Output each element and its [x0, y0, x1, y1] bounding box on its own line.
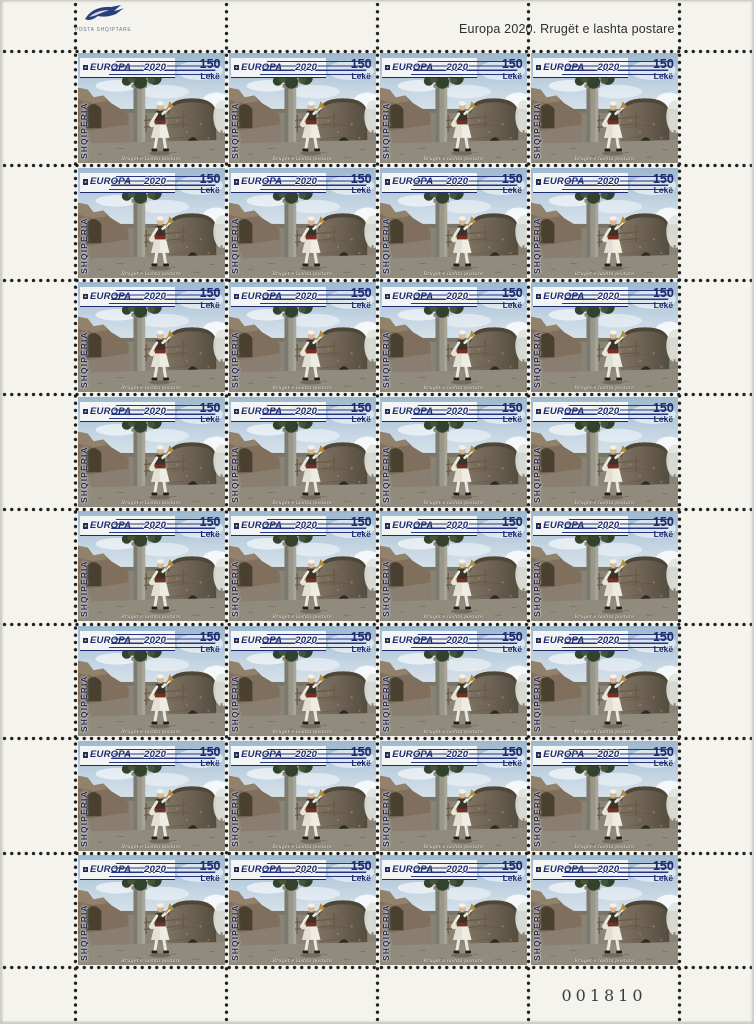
country-name: SHQIPËRIA — [79, 194, 89, 274]
stamp: EUROPA 2020 150 Lekë SHQIPËRIA Rrugët e … — [229, 397, 376, 507]
stamp: EUROPA 2020 150 Lekë SHQIPËRIA Rrugët e … — [78, 168, 225, 278]
country-name: SHQIPËRIA — [532, 881, 542, 961]
europa-text: EUROPA — [90, 750, 131, 760]
europa-2020-logo: EUROPA 2020 — [382, 287, 477, 307]
europa-text: EUROPA — [90, 63, 131, 73]
europa-year: 2020 — [144, 636, 166, 646]
europa-year: 2020 — [446, 636, 468, 646]
country-name: SHQIPËRIA — [230, 537, 240, 617]
country-name: SHQIPËRIA — [79, 308, 89, 388]
stamp-caption: Rrugët e lashta postare — [531, 385, 678, 391]
denomination: 150 Lekë — [502, 746, 523, 768]
denomination-currency: Lekë — [653, 530, 674, 539]
denomination-currency: Lekë — [200, 301, 221, 310]
stamp: EUROPA 2020 150 Lekë SHQIPËRIA Rrugët e … — [229, 626, 376, 736]
europa-year: 2020 — [295, 177, 317, 187]
stamp-sheet-scan: POSTA SHQIPTARE Europa 2020. Rrugët e la… — [0, 0, 754, 1024]
denomination-currency: Lekë — [502, 301, 523, 310]
stamp: EUROPA 2020 150 Lekë SHQIPËRIA Rrugët e … — [380, 53, 527, 163]
denomination-value: 150 — [502, 631, 523, 644]
denomination-currency: Lekë — [502, 186, 523, 195]
europa-2020-logo: EUROPA 2020 — [80, 516, 175, 536]
denomination-value: 150 — [351, 746, 372, 759]
denomination: 150 Lekë — [502, 58, 523, 80]
eu-flag-icon — [83, 523, 89, 529]
europa-text: EUROPA — [90, 292, 131, 302]
stamp-caption: Rrugët e lashta postare — [229, 614, 376, 620]
eu-flag-icon — [234, 179, 240, 185]
stamp: EUROPA 2020 150 Lekë SHQIPËRIA Rrugët e … — [531, 511, 678, 621]
europa-2020-logo: EUROPA 2020 — [382, 402, 477, 422]
eu-flag-icon — [83, 65, 89, 71]
country-name: SHQIPËRIA — [230, 881, 240, 961]
country-name: SHQIPËRIA — [532, 79, 542, 159]
stamp-caption: Rrugët e lashta postare — [380, 156, 527, 162]
denomination-value: 150 — [502, 287, 523, 300]
denomination: 150 Lekë — [351, 58, 372, 80]
stamp-caption: Rrugët e lashta postare — [531, 844, 678, 850]
europa-2020-logo: EUROPA 2020 — [231, 402, 326, 422]
europa-year: 2020 — [144, 63, 166, 73]
stamp-caption: Rrugët e lashta postare — [531, 271, 678, 277]
stamp-caption: Rrugët e lashta postare — [78, 271, 225, 277]
sheet-serial-number: 001810 — [528, 986, 680, 1005]
stamp: EUROPA 2020 150 Lekë SHQIPËRIA Rrugët e … — [229, 168, 376, 278]
europa-year: 2020 — [295, 865, 317, 875]
eu-flag-icon — [536, 752, 542, 758]
europa-text: EUROPA — [392, 407, 433, 417]
denomination-currency: Lekë — [502, 645, 523, 654]
europa-text: EUROPA — [543, 750, 584, 760]
europa-text: EUROPA — [241, 521, 282, 531]
country-name: SHQIPËRIA — [381, 652, 391, 732]
stamp: EUROPA 2020 150 Lekë SHQIPËRIA Rrugët e … — [531, 855, 678, 965]
europa-2020-logo: EUROPA 2020 — [80, 173, 175, 193]
denomination: 150 Lekë — [351, 402, 372, 424]
denomination: 150 Lekë — [502, 173, 523, 195]
denomination: 150 Lekë — [351, 860, 372, 882]
eu-flag-icon — [385, 179, 391, 185]
denomination-currency: Lekë — [200, 72, 221, 81]
denomination-currency: Lekë — [653, 874, 674, 883]
europa-2020-logo: EUROPA 2020 — [382, 173, 477, 193]
europa-year: 2020 — [446, 521, 468, 531]
denomination: 150 Lekë — [653, 631, 674, 653]
denomination-currency: Lekë — [502, 415, 523, 424]
denomination-currency: Lekë — [502, 72, 523, 81]
denomination-currency: Lekë — [351, 415, 372, 424]
eu-flag-icon — [83, 867, 89, 873]
denomination-value: 150 — [502, 173, 523, 186]
stamp: EUROPA 2020 150 Lekë SHQIPËRIA Rrugët e … — [78, 53, 225, 163]
europa-year: 2020 — [597, 292, 619, 302]
denomination-value: 150 — [200, 746, 221, 759]
denomination: 150 Lekë — [351, 746, 372, 768]
stamp: EUROPA 2020 150 Lekë SHQIPËRIA Rrugët e … — [380, 282, 527, 392]
europa-year: 2020 — [597, 865, 619, 875]
eu-flag-icon — [536, 867, 542, 873]
europa-text: EUROPA — [241, 750, 282, 760]
denomination: 150 Lekë — [653, 173, 674, 195]
country-name: SHQIPËRIA — [532, 308, 542, 388]
stamp: EUROPA 2020 150 Lekë SHQIPËRIA Rrugët e … — [229, 511, 376, 621]
europa-2020-logo: EUROPA 2020 — [80, 58, 175, 78]
denomination: 150 Lekë — [502, 860, 523, 882]
europa-text: EUROPA — [392, 292, 433, 302]
country-name: SHQIPËRIA — [532, 194, 542, 274]
stamp-caption: Rrugët e lashta postare — [78, 729, 225, 735]
europa-2020-logo: EUROPA 2020 — [533, 631, 628, 651]
denomination-value: 150 — [653, 516, 674, 529]
europa-text: EUROPA — [392, 521, 433, 531]
europa-year: 2020 — [295, 63, 317, 73]
europa-year: 2020 — [446, 407, 468, 417]
denomination-currency: Lekë — [200, 874, 221, 883]
stamp: EUROPA 2020 150 Lekë SHQIPËRIA Rrugët e … — [531, 626, 678, 736]
europa-year: 2020 — [446, 63, 468, 73]
stamp-caption: Rrugët e lashta postare — [78, 844, 225, 850]
stamp-caption: Rrugët e lashta postare — [531, 156, 678, 162]
europa-2020-logo: EUROPA 2020 — [533, 173, 628, 193]
europa-2020-logo: EUROPA 2020 — [231, 287, 326, 307]
europa-2020-logo: EUROPA 2020 — [231, 631, 326, 651]
eu-flag-icon — [83, 409, 89, 415]
stamp-caption: Rrugët e lashta postare — [229, 156, 376, 162]
denomination: 150 Lekë — [351, 631, 372, 653]
denomination: 150 Lekë — [200, 516, 221, 538]
europa-2020-logo: EUROPA 2020 — [382, 516, 477, 536]
europa-2020-logo: EUROPA 2020 — [533, 860, 628, 880]
denomination-currency: Lekë — [653, 186, 674, 195]
europa-year: 2020 — [144, 865, 166, 875]
stamp-caption: Rrugët e lashta postare — [229, 500, 376, 506]
issuer-name: POSTA SHQIPTARE — [62, 27, 144, 33]
denomination-value: 150 — [653, 631, 674, 644]
stamp: EUROPA 2020 150 Lekë SHQIPËRIA Rrugët e … — [78, 626, 225, 736]
stamp: EUROPA 2020 150 Lekë SHQIPËRIA Rrugët e … — [380, 626, 527, 736]
stamp: EUROPA 2020 150 Lekë SHQIPËRIA Rrugët e … — [78, 511, 225, 621]
stamp-caption: Rrugët e lashta postare — [229, 271, 376, 277]
eu-flag-icon — [385, 65, 391, 71]
eu-flag-icon — [536, 523, 542, 529]
denomination-currency: Lekë — [200, 186, 221, 195]
stamp: EUROPA 2020 150 Lekë SHQIPËRIA Rrugët e … — [380, 855, 527, 965]
europa-text: EUROPA — [543, 292, 584, 302]
stamp: EUROPA 2020 150 Lekë SHQIPËRIA Rrugët e … — [229, 855, 376, 965]
europa-text: EUROPA — [241, 177, 282, 187]
stamp: EUROPA 2020 150 Lekë SHQIPËRIA Rrugët e … — [380, 741, 527, 851]
country-name: SHQIPËRIA — [79, 537, 89, 617]
denomination-currency: Lekë — [351, 759, 372, 768]
europa-year: 2020 — [446, 177, 468, 187]
europa-year: 2020 — [597, 750, 619, 760]
eu-flag-icon — [234, 409, 240, 415]
europa-text: EUROPA — [543, 865, 584, 875]
denomination: 150 Lekë — [653, 58, 674, 80]
eu-flag-icon — [234, 523, 240, 529]
denomination-value: 150 — [502, 746, 523, 759]
europa-2020-logo: EUROPA 2020 — [533, 287, 628, 307]
eu-flag-icon — [385, 523, 391, 529]
europa-year: 2020 — [597, 177, 619, 187]
eu-flag-icon — [536, 294, 542, 300]
denomination-currency: Lekë — [653, 645, 674, 654]
stamp: EUROPA 2020 150 Lekë SHQIPËRIA Rrugët e … — [78, 855, 225, 965]
denomination: 150 Lekë — [502, 402, 523, 424]
europa-2020-logo: EUROPA 2020 — [533, 58, 628, 78]
denomination: 150 Lekë — [200, 631, 221, 653]
stamp: EUROPA 2020 150 Lekë SHQIPËRIA Rrugët e … — [78, 741, 225, 851]
europa-2020-logo: EUROPA 2020 — [80, 402, 175, 422]
europa-text: EUROPA — [392, 865, 433, 875]
denomination-value: 150 — [502, 58, 523, 71]
denomination-currency: Lekë — [200, 415, 221, 424]
stamp-caption: Rrugët e lashta postare — [531, 500, 678, 506]
europa-text: EUROPA — [241, 865, 282, 875]
stamp-caption: Rrugët e lashta postare — [229, 729, 376, 735]
europa-text: EUROPA — [90, 636, 131, 646]
eu-flag-icon — [385, 638, 391, 644]
europa-2020-logo: EUROPA 2020 — [382, 746, 477, 766]
denomination-currency: Lekë — [200, 530, 221, 539]
denomination-value: 150 — [351, 860, 372, 873]
denomination-value: 150 — [653, 287, 674, 300]
europa-text: EUROPA — [90, 865, 131, 875]
europa-2020-logo: EUROPA 2020 — [382, 58, 477, 78]
stamp: EUROPA 2020 150 Lekë SHQIPËRIA Rrugët e … — [229, 53, 376, 163]
country-name: SHQIPËRIA — [79, 881, 89, 961]
denomination-value: 150 — [351, 58, 372, 71]
eu-flag-icon — [234, 65, 240, 71]
europa-year: 2020 — [597, 407, 619, 417]
europa-text: EUROPA — [543, 63, 584, 73]
country-name: SHQIPËRIA — [381, 881, 391, 961]
europa-year: 2020 — [144, 407, 166, 417]
stamp-caption: Rrugët e lashta postare — [380, 844, 527, 850]
posta-shqiptare-swoosh-icon — [79, 3, 127, 27]
europa-year: 2020 — [144, 521, 166, 531]
denomination-value: 150 — [200, 58, 221, 71]
denomination-currency: Lekë — [351, 530, 372, 539]
denomination: 150 Lekë — [200, 287, 221, 309]
eu-flag-icon — [385, 752, 391, 758]
country-name: SHQIPËRIA — [381, 767, 391, 847]
stamp-caption: Rrugët e lashta postare — [531, 729, 678, 735]
stamp: EUROPA 2020 150 Lekë SHQIPËRIA Rrugët e … — [531, 282, 678, 392]
eu-flag-icon — [83, 179, 89, 185]
denomination-value: 150 — [351, 516, 372, 529]
denomination-value: 150 — [351, 402, 372, 415]
stamp-caption: Rrugët e lashta postare — [78, 958, 225, 964]
denomination-currency: Lekë — [653, 72, 674, 81]
europa-text: EUROPA — [543, 407, 584, 417]
europa-2020-logo: EUROPA 2020 — [533, 746, 628, 766]
stamp-caption: Rrugët e lashta postare — [78, 614, 225, 620]
denomination-currency: Lekë — [200, 759, 221, 768]
stamp: EUROPA 2020 150 Lekë SHQIPËRIA Rrugët e … — [229, 741, 376, 851]
eu-flag-icon — [234, 867, 240, 873]
europa-text: EUROPA — [90, 407, 131, 417]
country-name: SHQIPËRIA — [230, 423, 240, 503]
eu-flag-icon — [83, 752, 89, 758]
denomination-value: 150 — [200, 402, 221, 415]
europa-text: EUROPA — [543, 177, 584, 187]
stamp: EUROPA 2020 150 Lekë SHQIPËRIA Rrugët e … — [380, 168, 527, 278]
stamp-caption: Rrugët e lashta postare — [380, 500, 527, 506]
country-name: SHQIPËRIA — [230, 308, 240, 388]
stamp-caption: Rrugët e lashta postare — [380, 614, 527, 620]
country-name: SHQIPËRIA — [381, 79, 391, 159]
denomination: 150 Lekë — [653, 402, 674, 424]
denomination-value: 150 — [351, 287, 372, 300]
stamp-grid: EUROPA 2020 150 Lekë SHQIPËRIA Rrugët e … — [0, 0, 754, 1024]
denomination: 150 Lekë — [200, 402, 221, 424]
europa-year: 2020 — [446, 750, 468, 760]
denomination-currency: Lekë — [502, 759, 523, 768]
eu-flag-icon — [234, 294, 240, 300]
europa-text: EUROPA — [241, 292, 282, 302]
country-name: SHQIPËRIA — [381, 194, 391, 274]
denomination: 150 Lekë — [200, 58, 221, 80]
denomination-value: 150 — [653, 58, 674, 71]
denomination: 150 Lekë — [351, 287, 372, 309]
country-name: SHQIPËRIA — [230, 79, 240, 159]
eu-flag-icon — [536, 638, 542, 644]
europa-year: 2020 — [597, 63, 619, 73]
stamp-caption: Rrugët e lashta postare — [380, 958, 527, 964]
denomination-currency: Lekë — [351, 645, 372, 654]
denomination: 150 Lekë — [653, 860, 674, 882]
stamp: EUROPA 2020 150 Lekë SHQIPËRIA Rrugët e … — [229, 282, 376, 392]
denomination-currency: Lekë — [351, 301, 372, 310]
stamp: EUROPA 2020 150 Lekë SHQIPËRIA Rrugët e … — [531, 168, 678, 278]
denomination-value: 150 — [200, 631, 221, 644]
europa-2020-logo: EUROPA 2020 — [231, 58, 326, 78]
europa-year: 2020 — [295, 636, 317, 646]
europa-text: EUROPA — [241, 63, 282, 73]
denomination-currency: Lekë — [653, 415, 674, 424]
stamp-caption: Rrugët e lashta postare — [78, 156, 225, 162]
denomination-value: 150 — [502, 860, 523, 873]
europa-2020-logo: EUROPA 2020 — [382, 860, 477, 880]
europa-2020-logo: EUROPA 2020 — [80, 287, 175, 307]
denomination-currency: Lekë — [351, 186, 372, 195]
europa-year: 2020 — [144, 750, 166, 760]
eu-flag-icon — [385, 409, 391, 415]
denomination-value: 150 — [200, 287, 221, 300]
denomination: 150 Lekë — [653, 746, 674, 768]
stamp-caption: Rrugët e lashta postare — [78, 385, 225, 391]
denomination: 150 Lekë — [502, 516, 523, 538]
denomination-value: 150 — [653, 402, 674, 415]
stamp-caption: Rrugët e lashta postare — [380, 385, 527, 391]
europa-year: 2020 — [446, 865, 468, 875]
europa-year: 2020 — [144, 292, 166, 302]
denomination-value: 150 — [502, 402, 523, 415]
eu-flag-icon — [385, 867, 391, 873]
country-name: SHQIPËRIA — [532, 652, 542, 732]
eu-flag-icon — [234, 638, 240, 644]
country-name: SHQIPËRIA — [79, 423, 89, 503]
denomination-currency: Lekë — [653, 301, 674, 310]
europa-text: EUROPA — [90, 177, 131, 187]
stamp: EUROPA 2020 150 Lekë SHQIPËRIA Rrugët e … — [531, 53, 678, 163]
europa-year: 2020 — [144, 177, 166, 187]
denomination-value: 150 — [200, 860, 221, 873]
europa-year: 2020 — [597, 636, 619, 646]
eu-flag-icon — [83, 638, 89, 644]
country-name: SHQIPËRIA — [79, 79, 89, 159]
europa-text: EUROPA — [392, 636, 433, 646]
country-name: SHQIPËRIA — [79, 767, 89, 847]
denomination-currency: Lekë — [351, 72, 372, 81]
denomination: 150 Lekë — [200, 860, 221, 882]
europa-2020-logo: EUROPA 2020 — [382, 631, 477, 651]
denomination-currency: Lekë — [502, 874, 523, 883]
europa-2020-logo: EUROPA 2020 — [231, 516, 326, 536]
denomination-value: 150 — [653, 173, 674, 186]
denomination: 150 Lekë — [351, 516, 372, 538]
country-name: SHQIPËRIA — [532, 423, 542, 503]
denomination-value: 150 — [653, 746, 674, 759]
country-name: SHQIPËRIA — [381, 537, 391, 617]
country-name: SHQIPËRIA — [79, 652, 89, 732]
denomination-currency: Lekë — [351, 874, 372, 883]
stamp: EUROPA 2020 150 Lekë SHQIPËRIA Rrugët e … — [78, 282, 225, 392]
sheet-title: Europa 2020. Rrugët e lashta postare — [459, 22, 675, 36]
europa-year: 2020 — [295, 521, 317, 531]
country-name: SHQIPËRIA — [230, 194, 240, 274]
denomination: 150 Lekë — [200, 173, 221, 195]
europa-text: EUROPA — [241, 407, 282, 417]
denomination-currency: Lekë — [200, 645, 221, 654]
denomination: 150 Lekë — [653, 287, 674, 309]
stamp: EUROPA 2020 150 Lekë SHQIPËRIA Rrugët e … — [531, 741, 678, 851]
europa-2020-logo: EUROPA 2020 — [533, 516, 628, 536]
denomination: 150 Lekë — [351, 173, 372, 195]
europa-text: EUROPA — [392, 177, 433, 187]
eu-flag-icon — [536, 409, 542, 415]
stamp-caption: Rrugët e lashta postare — [78, 500, 225, 506]
stamp: EUROPA 2020 150 Lekë SHQIPËRIA Rrugët e … — [380, 397, 527, 507]
issuer-logo: POSTA SHQIPTARE — [62, 3, 144, 33]
europa-text: EUROPA — [543, 521, 584, 531]
denomination-value: 150 — [351, 631, 372, 644]
denomination: 150 Lekë — [200, 746, 221, 768]
denomination-value: 150 — [200, 516, 221, 529]
stamp: EUROPA 2020 150 Lekë SHQIPËRIA Rrugët e … — [78, 397, 225, 507]
europa-2020-logo: EUROPA 2020 — [231, 860, 326, 880]
europa-text: EUROPA — [392, 63, 433, 73]
europa-2020-logo: EUROPA 2020 — [231, 746, 326, 766]
stamp-caption: Rrugët e lashta postare — [531, 958, 678, 964]
europa-2020-logo: EUROPA 2020 — [231, 173, 326, 193]
europa-2020-logo: EUROPA 2020 — [80, 631, 175, 651]
europa-text: EUROPA — [241, 636, 282, 646]
country-name: SHQIPËRIA — [381, 423, 391, 503]
europa-text: EUROPA — [90, 521, 131, 531]
denomination-value: 150 — [351, 173, 372, 186]
denomination-currency: Lekë — [653, 759, 674, 768]
eu-flag-icon — [83, 294, 89, 300]
europa-2020-logo: EUROPA 2020 — [80, 860, 175, 880]
country-name: SHQIPËRIA — [381, 308, 391, 388]
denomination-currency: Lekë — [502, 530, 523, 539]
europa-year: 2020 — [597, 521, 619, 531]
stamp: EUROPA 2020 150 Lekë SHQIPËRIA Rrugët e … — [531, 397, 678, 507]
europa-year: 2020 — [446, 292, 468, 302]
country-name: SHQIPËRIA — [230, 652, 240, 732]
